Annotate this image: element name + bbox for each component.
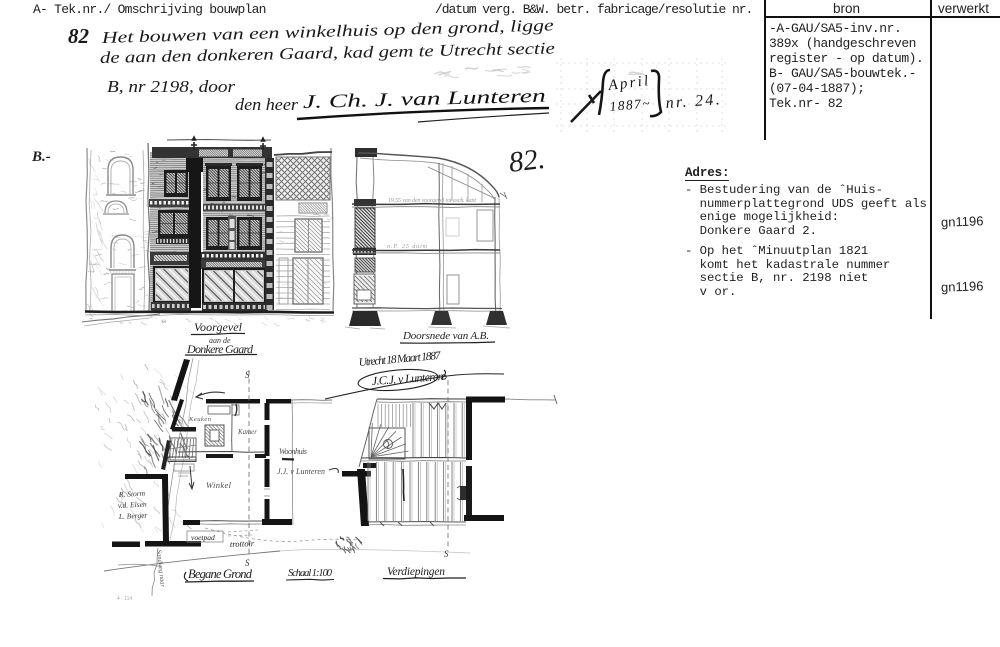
- svg-text:19.55 van den voorgevel tot as: 19.55 van den voorgevel tot asch. kant: [388, 198, 476, 204]
- svg-text:trottoir: trottoir: [230, 538, 255, 549]
- svg-text:R. Storm: R. Storm: [118, 489, 146, 499]
- svg-text:den heer: den heer: [235, 95, 299, 114]
- svg-text:Winkel: Winkel: [206, 480, 232, 490]
- svg-text:April: April: [607, 73, 650, 94]
- svg-text:82: 82: [68, 24, 90, 48]
- svg-text:L. Berger: L. Berger: [118, 511, 148, 522]
- svg-text:Keuken: Keuken: [188, 416, 211, 423]
- svg-text:Doorsnede van A.B.: Doorsnede van A.B.: [402, 330, 489, 342]
- svg-text:J.J. v Lunteren: J.J. v Lunteren: [277, 467, 325, 476]
- svg-text:4 - 114: 4 - 114: [117, 596, 132, 602]
- svg-text:Woonhuis: Woonhuis: [279, 447, 307, 456]
- svg-text:Verdiepingen: Verdiepingen: [387, 566, 445, 578]
- svg-text:B.-: B.-: [31, 149, 51, 165]
- svg-text:Utrecht 18 Maart 1887: Utrecht 18 Maart 1887: [358, 350, 442, 369]
- svg-text:82.: 82.: [507, 143, 547, 179]
- svg-text:Sandweg naar: Sandweg naar: [155, 549, 166, 587]
- svg-text:voetpad: voetpad: [191, 533, 215, 542]
- svg-text:Voorgevel: Voorgevel: [194, 320, 243, 334]
- svg-text:n.P. 25 duim: n.P. 25 duim: [387, 244, 428, 250]
- svg-text:B, nr 2198, door: B, nr 2198, door: [107, 77, 236, 96]
- svg-text:1887~: 1887~: [609, 95, 651, 113]
- svg-text:S: S: [245, 370, 250, 380]
- svg-text:Begane Grond: Begane Grond: [188, 567, 253, 581]
- svg-text:Kamer: Kamer: [237, 428, 257, 436]
- svg-text:S: S: [444, 549, 449, 559]
- svg-text:nr. 24.: nr. 24.: [665, 91, 720, 112]
- svg-text:v.d. Elsen: v.d. Elsen: [118, 499, 147, 510]
- svg-text:Schaal 1:100: Schaal 1:100: [288, 568, 333, 579]
